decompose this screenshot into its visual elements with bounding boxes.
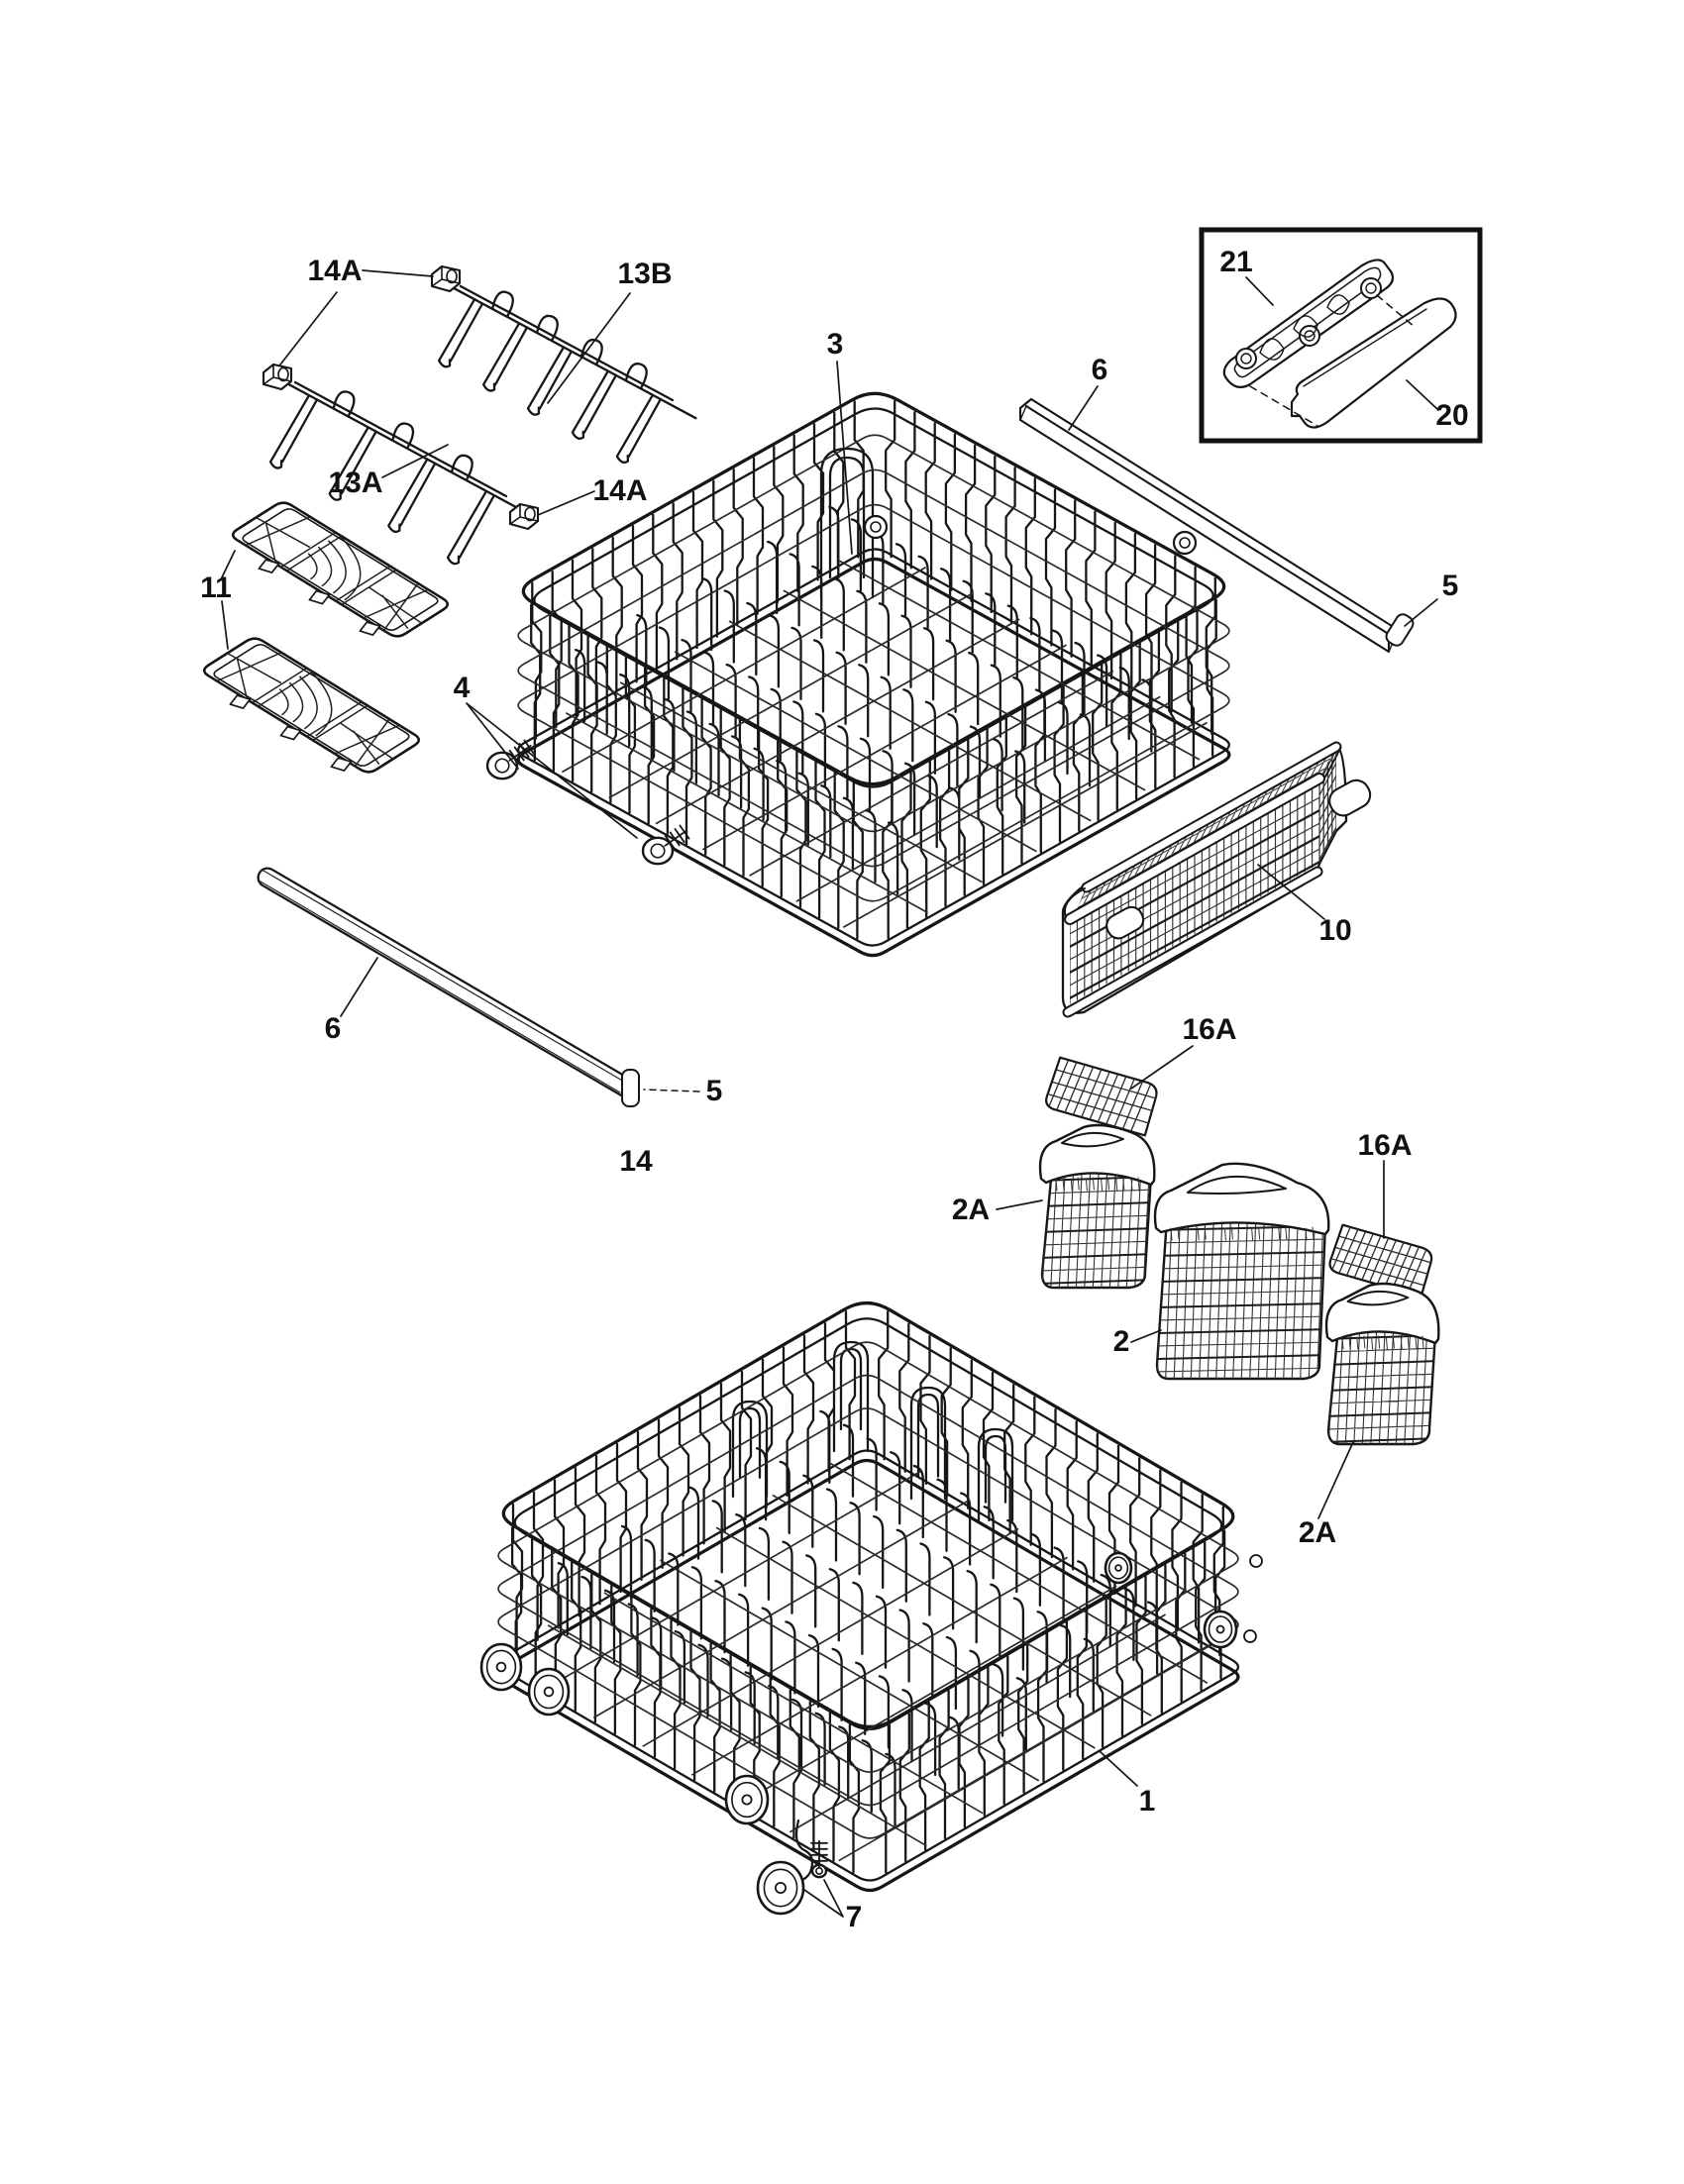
svg-text:6: 6 bbox=[1092, 354, 1108, 386]
svg-text:20: 20 bbox=[1435, 399, 1468, 432]
svg-text:13B: 13B bbox=[617, 258, 672, 290]
svg-text:13A: 13A bbox=[328, 467, 382, 499]
svg-text:2A: 2A bbox=[952, 1194, 990, 1226]
svg-text:3: 3 bbox=[827, 328, 844, 361]
svg-text:5: 5 bbox=[706, 1075, 723, 1107]
svg-text:7: 7 bbox=[846, 1901, 863, 1933]
svg-text:2: 2 bbox=[1113, 1325, 1130, 1358]
svg-text:14A: 14A bbox=[592, 474, 647, 507]
svg-text:11: 11 bbox=[200, 572, 232, 604]
svg-text:14: 14 bbox=[619, 1145, 653, 1178]
svg-text:6: 6 bbox=[325, 1012, 342, 1045]
svg-text:1: 1 bbox=[1139, 1785, 1156, 1818]
svg-text:2A: 2A bbox=[1299, 1516, 1336, 1549]
svg-text:16A: 16A bbox=[1182, 1013, 1236, 1046]
svg-text:21: 21 bbox=[1219, 246, 1252, 278]
svg-text:4: 4 bbox=[454, 672, 471, 704]
svg-text:5: 5 bbox=[1442, 570, 1459, 602]
svg-text:16A: 16A bbox=[1357, 1129, 1412, 1162]
svg-text:14A: 14A bbox=[307, 255, 362, 287]
